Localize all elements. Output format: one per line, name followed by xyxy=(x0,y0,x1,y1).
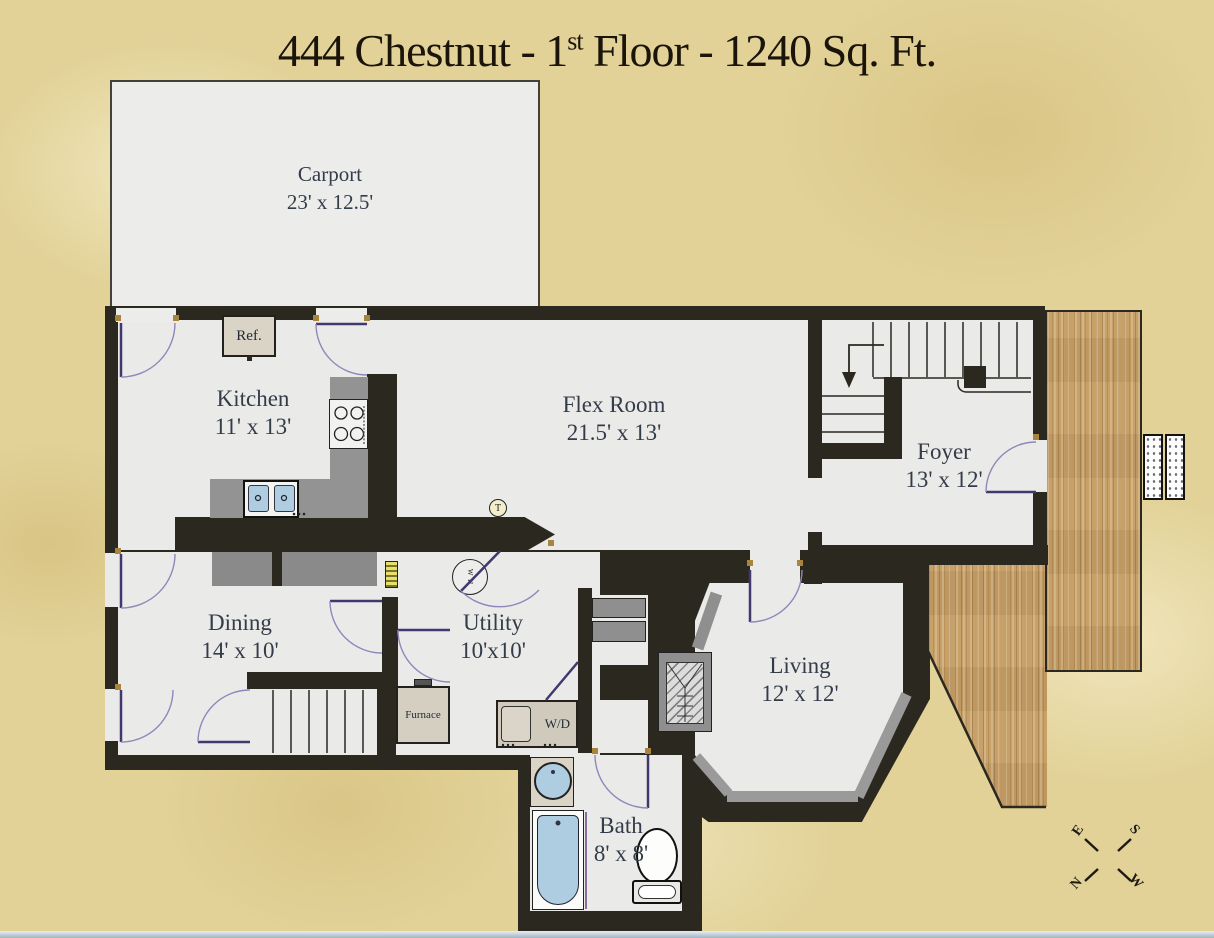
room-label-foyer: Foyer 13' x 12' xyxy=(844,438,1044,494)
opening-living-door xyxy=(750,548,800,585)
compass-lines xyxy=(1085,839,1131,881)
cabinet-divider xyxy=(272,552,282,586)
deck-right xyxy=(1045,310,1142,672)
hinge-pip xyxy=(747,560,753,566)
kitchen-name: Kitchen xyxy=(153,385,353,413)
deck-step-2 xyxy=(1165,434,1185,500)
dishwasher xyxy=(385,561,398,588)
utility-name: Utility xyxy=(393,609,593,637)
water-heater-label: W H xyxy=(466,569,474,585)
title-prefix: 444 Chestnut - 1 xyxy=(278,25,567,76)
wall-peninsula xyxy=(175,517,555,552)
closet-shelf-1 xyxy=(592,598,646,618)
room-label-kitchen: Kitchen 11' x 13' xyxy=(153,385,353,441)
floorplan-canvas: 444 Chestnut - 1st Floor - 1240 Sq. Ft. xyxy=(0,0,1214,938)
refrigerator-tick xyxy=(247,356,252,361)
dining-name: Dining xyxy=(140,609,340,637)
toilet-seat xyxy=(638,885,676,899)
furnace: Furnace xyxy=(396,686,450,744)
flex-name: Flex Room xyxy=(514,391,714,419)
wall-stairwell-right xyxy=(377,688,396,755)
sink-basin-right xyxy=(274,485,295,512)
bath-sink xyxy=(534,762,572,800)
deck-inner xyxy=(928,563,1047,807)
room-label-bath: Bath 8' x 8' xyxy=(521,812,721,868)
title-suffix: Floor - 1240 Sq. Ft. xyxy=(583,25,936,76)
hinge-pip xyxy=(548,540,554,546)
fireplace-firebox xyxy=(666,662,704,724)
thermostat-label: T xyxy=(495,503,501,514)
living-bay-window-bottom xyxy=(727,791,858,802)
sink-basin-left xyxy=(248,485,269,512)
hinge-pip xyxy=(592,748,598,754)
compass-north: N xyxy=(1068,875,1087,893)
living-dims: 12' x 12' xyxy=(700,680,900,708)
compass-south: S xyxy=(1125,822,1142,838)
thermostat: T xyxy=(489,499,507,517)
wall-kitchen-flex-divider xyxy=(367,374,397,520)
closet-shelf-2 xyxy=(592,621,646,642)
opening-carport-flex xyxy=(316,308,367,322)
room-label-carport: Carport 23' x 12.5' xyxy=(230,160,430,216)
opening-carport-kitchen xyxy=(116,308,176,322)
furnace-vent xyxy=(414,679,432,686)
dining-cabinet-2 xyxy=(282,552,377,586)
title-superscript: st xyxy=(567,27,582,56)
compass-west: W xyxy=(1124,871,1145,892)
kitchen-dims: 11' x 13' xyxy=(153,413,353,441)
stair-newel-post xyxy=(964,366,986,388)
refrigerator: Ref. xyxy=(222,315,276,357)
dining-dims: 14' x 10' xyxy=(140,637,340,665)
hinge-pip xyxy=(645,748,651,754)
room-label-flex: Flex Room 21.5' x 13' xyxy=(514,391,714,447)
living-name: Living xyxy=(700,652,900,680)
hinge-pip xyxy=(797,560,803,566)
foyer-stairs-floor xyxy=(822,320,1033,553)
furnace-label: Furnace xyxy=(405,709,440,721)
washer-dryer-label: W/D xyxy=(545,716,570,732)
bath-dims: 8' x 8' xyxy=(521,840,721,868)
water-heater: W H xyxy=(452,559,488,595)
bath-name: Bath xyxy=(521,812,721,840)
opening-dining-left-bottom xyxy=(105,689,119,741)
opening-flex-foyer xyxy=(806,478,822,532)
hinge-pip xyxy=(115,684,121,690)
carport-dims: 23' x 12.5' xyxy=(230,188,430,216)
foyer-dims: 13' x 12' xyxy=(844,466,1044,494)
flex-dims: 21.5' x 13' xyxy=(514,419,714,447)
bath-passage-floor xyxy=(592,700,648,753)
foyer-name: Foyer xyxy=(844,438,1044,466)
wall-foyer-stair-side xyxy=(884,377,902,447)
refrigerator-label: Ref. xyxy=(236,328,261,345)
hinge-pip xyxy=(115,548,121,554)
hinge-pip xyxy=(173,315,179,321)
washer-drum xyxy=(501,706,531,742)
hinge-pip xyxy=(115,315,121,321)
hinge-pip xyxy=(313,315,319,321)
deck-step-1 xyxy=(1143,434,1163,500)
wall-foyer-bottom xyxy=(818,545,1048,565)
room-label-utility: Utility 10'x10' xyxy=(393,609,593,665)
utility-dims: 10'x10' xyxy=(393,637,593,665)
room-label-dining: Dining 14' x 10' xyxy=(140,609,340,665)
hinge-pip xyxy=(364,315,370,321)
dining-cabinet-1 xyxy=(212,552,272,586)
bottom-edge-strip xyxy=(0,931,1214,938)
opening-dining-left-top xyxy=(105,553,119,607)
room-label-living: Living 12' x 12' xyxy=(700,652,900,708)
plan-title: 444 Chestnut - 1st Floor - 1240 Sq. Ft. xyxy=(0,24,1214,77)
carport-name: Carport xyxy=(230,160,430,188)
wall-stairwell-top xyxy=(247,672,384,689)
compass-east: E xyxy=(1069,823,1087,840)
